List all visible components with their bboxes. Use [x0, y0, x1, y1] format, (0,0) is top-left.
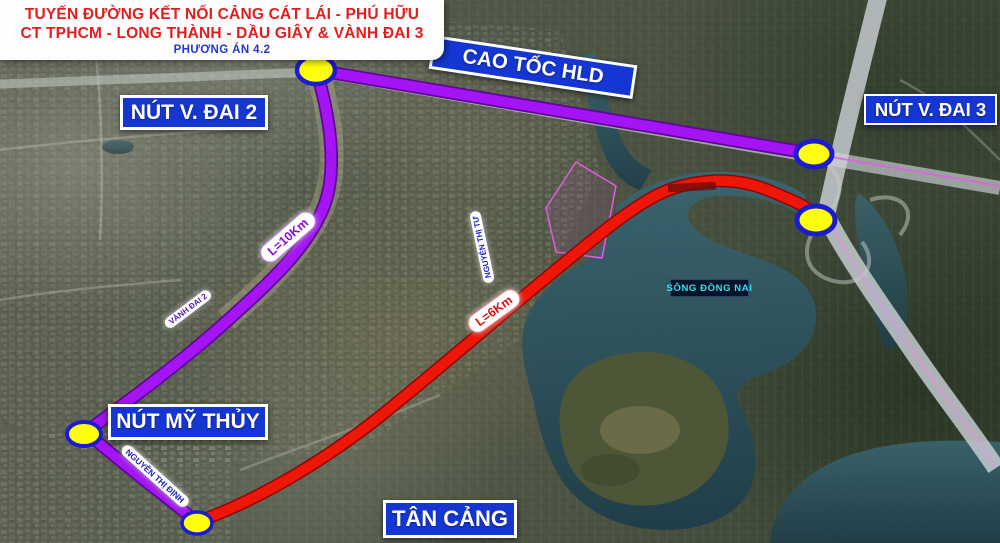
junction-node-vd3-south [797, 206, 835, 234]
river-label-song-dong-nai: SÔNG ĐỒNG NAI [670, 279, 749, 297]
sign-tan-cang: TÂN CẢNG [383, 500, 517, 538]
junction-node-vd3-north [796, 141, 832, 167]
junction-node-my-thuy [67, 422, 101, 446]
title-line-3: PHƯƠNG ÁN 4.2 [4, 44, 440, 56]
sign-nut-vanh-dai-2: NÚT V. ĐAI 2 [120, 95, 268, 130]
junction-node-tan-cang [182, 512, 212, 534]
title-box: TUYẾN ĐƯỜNG KẾT NỐI CẢNG CÁT LÁI - PHÚ H… [0, 0, 444, 60]
sign-nut-my-thuy: NÚT MỸ THỦY [108, 404, 268, 440]
routes-overlay [0, 0, 1000, 543]
map-container: TUYẾN ĐƯỜNG KẾT NỐI CẢNG CÁT LÁI - PHÚ H… [0, 0, 1000, 543]
sign-nut-vanh-dai-3: NÚT V. ĐAI 3 [864, 94, 997, 125]
title-line-1: TUYẾN ĐƯỜNG KẾT NỐI CẢNG CÁT LÁI - PHÚ H… [4, 5, 440, 24]
title-line-2: CT TPHCM - LONG THÀNH - DẦU GIÂY & VÀNH … [4, 24, 440, 43]
junction-node-vd2-hld [297, 56, 335, 84]
river-island [560, 352, 729, 505]
